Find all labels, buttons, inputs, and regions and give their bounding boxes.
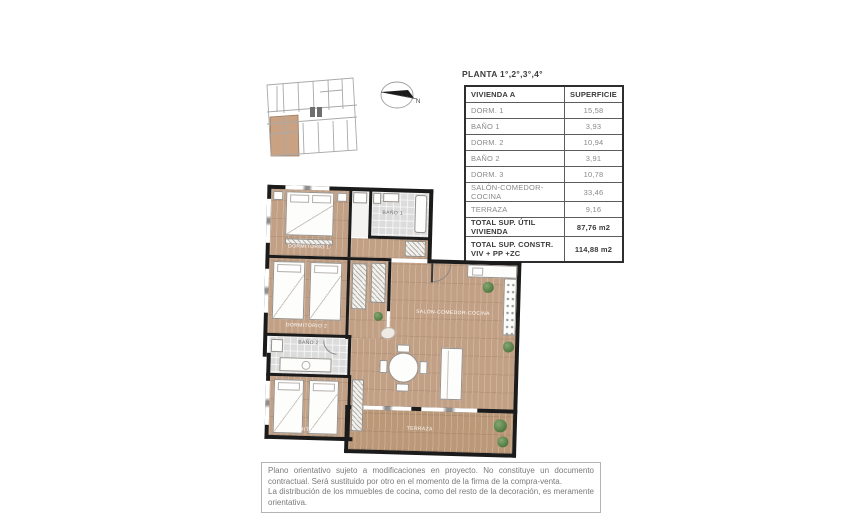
single-bed (272, 261, 306, 320)
pillow (277, 264, 301, 273)
table-row: DORM. 3 10,78 (465, 167, 623, 183)
north-needle-icon (381, 90, 414, 98)
chair (419, 361, 427, 374)
table-row: DORM. 1 15,58 (465, 103, 623, 119)
kitchen-counter-cooktop (502, 278, 517, 335)
sofa-cushion-line (447, 351, 449, 399)
chair (396, 383, 409, 391)
north-compass: N (376, 78, 424, 120)
key-plan-thumbnail (257, 72, 375, 178)
disclaimer-text-2: La distribución de los mmuebles de cocin… (268, 487, 594, 508)
room-area: 3,91 (565, 151, 624, 167)
disclaimer-text-1: Plano orientativo sujeto a modificacione… (268, 466, 594, 487)
room-area: 15,58 (565, 103, 624, 119)
pillow (278, 382, 300, 391)
room-area: 10,78 (565, 167, 624, 183)
table-row: DORM. 2 10,94 (465, 135, 623, 151)
kitchen-counter (467, 264, 517, 278)
dorm3-wardrobe (351, 379, 364, 431)
room-name: BAÑO 1 (465, 119, 565, 135)
table-header-row: VIVIENDA A SUPERFICIE (465, 86, 623, 103)
room-name: BAÑO 2 (465, 151, 565, 167)
col-header-superficie: SUPERFICIE (565, 86, 624, 103)
floor-plan: DORMITORIO 1 BAÑO 1 DORMITORIO 2 BAÑO 2 (250, 182, 529, 461)
single-bed (309, 262, 343, 321)
room-area: 10,94 (565, 135, 624, 151)
bed-fold (310, 275, 341, 320)
kitchen-sink (472, 267, 483, 275)
wardrobe (353, 192, 367, 203)
north-label: N (416, 99, 420, 105)
chair (397, 344, 410, 352)
corridor-wardrobe (370, 263, 386, 303)
entry-wardrobe (405, 241, 426, 258)
room-area: 3,93 (565, 119, 624, 135)
double-bed (285, 191, 334, 236)
room-name: DORM. 2 (465, 135, 565, 151)
bathtub (414, 195, 427, 233)
total-value: 114,88 m2 (565, 237, 624, 263)
shower (271, 339, 283, 352)
chair (379, 360, 387, 373)
pillow (313, 383, 335, 392)
pillow (290, 194, 309, 203)
pillow (312, 195, 331, 204)
wall (427, 189, 433, 263)
sofa (440, 348, 463, 401)
col-header-vivienda: VIVIENDA A (465, 86, 565, 103)
toilet (373, 193, 381, 204)
pillow (314, 265, 338, 274)
room-name: DORM. 3 (465, 167, 565, 183)
nightstand (273, 191, 283, 200)
room-area: 9,16 (565, 202, 624, 218)
vanity-counter (279, 357, 331, 372)
room-name: DORM. 1 (465, 103, 565, 119)
disclaimer-box: Plano orientativo sujeto a modificacione… (261, 462, 601, 513)
room-label-bano1: BAÑO 1 (372, 210, 414, 217)
total-value: 87,76 m2 (565, 218, 624, 237)
floor-title: PLANTA 1°,2°,3°,4° (462, 69, 543, 79)
table-row: BAÑO 2 3,91 (465, 151, 623, 167)
plan-sheet: N PLANTA 1°,2°,3°,4° VIVIENDA A SUPERFIC… (0, 0, 850, 530)
bed-fold (286, 204, 333, 235)
corridor-wardrobe (351, 263, 367, 309)
nightstand (337, 193, 347, 202)
table-row: BAÑO 1 3,93 (465, 119, 623, 135)
sink (301, 361, 310, 370)
room-area: 33,46 (565, 183, 624, 202)
sink (383, 193, 399, 202)
bed-fold (273, 274, 304, 319)
